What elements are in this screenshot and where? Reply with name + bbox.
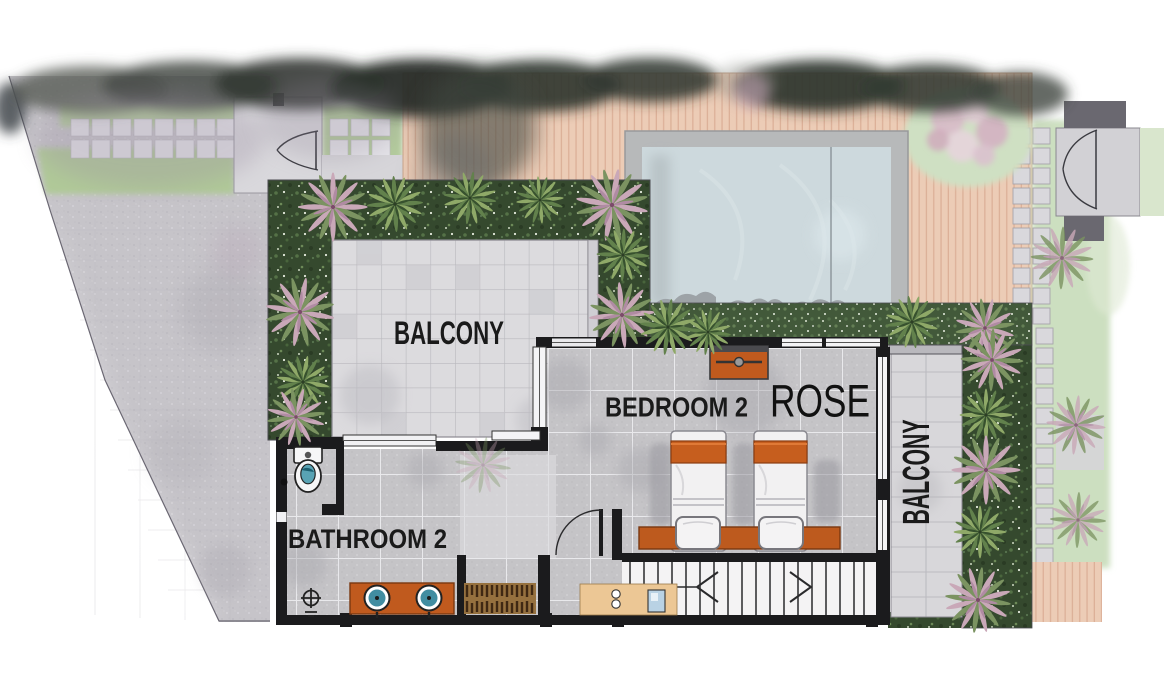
svg-text:BALCONY: BALCONY xyxy=(394,315,504,351)
svg-text:BATHROOM 2: BATHROOM 2 xyxy=(288,524,447,554)
svg-text:ROSE: ROSE xyxy=(770,376,870,427)
svg-text:BEDROOM 2: BEDROOM 2 xyxy=(605,392,748,423)
svg-text:BALCONY: BALCONY xyxy=(896,420,938,525)
